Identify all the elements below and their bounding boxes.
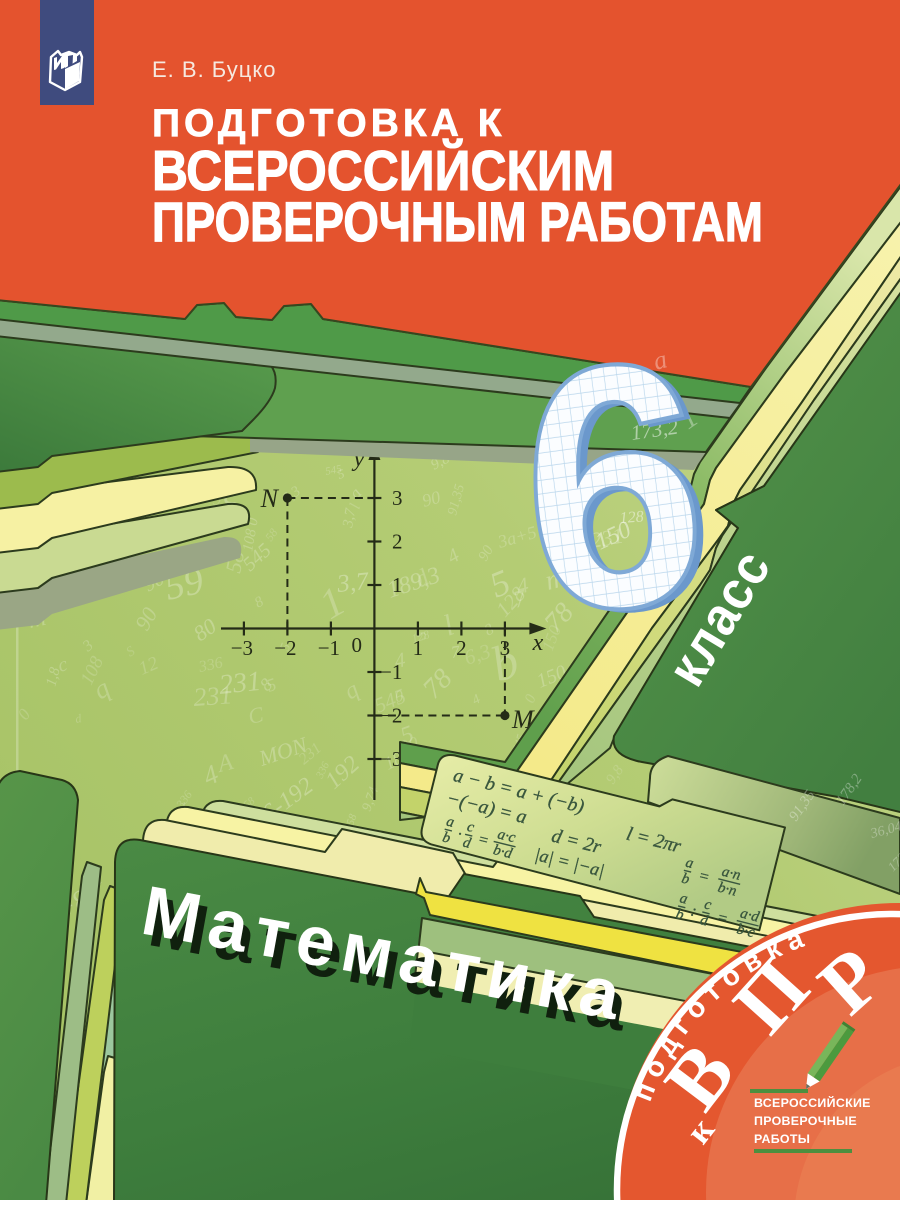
svg-text:231: 231 — [192, 680, 233, 712]
svg-text:0: 0 — [352, 633, 363, 657]
svg-text:РАБОТЫ: РАБОТЫ — [754, 1132, 810, 1146]
svg-text:ПРОВЕРОЧНЫЕ: ПРОВЕРОЧНЫЕ — [754, 1114, 857, 1128]
svg-text:1: 1 — [392, 573, 403, 597]
svg-text:6: 6 — [512, 288, 715, 685]
svg-text:Е. В. Буцко: Е. В. Буцко — [152, 57, 276, 82]
svg-text:ПРОВЕРОЧНЫМ РАБОТАМ: ПРОВЕРОЧНЫМ РАБОТАМ — [152, 191, 763, 253]
svg-text:ПОДГОТОВКА К: ПОДГОТОВКА К — [152, 102, 506, 145]
svg-text:−2: −2 — [274, 636, 296, 660]
svg-text:2: 2 — [392, 530, 403, 554]
svg-text:3,7: 3,7 — [335, 568, 371, 598]
svg-text:−1: −1 — [318, 636, 340, 660]
svg-text:−1: −1 — [380, 660, 402, 684]
svg-text:3: 3 — [392, 486, 403, 510]
svg-text:3: 3 — [500, 636, 511, 660]
svg-text:N: N — [260, 484, 280, 513]
svg-text:1: 1 — [413, 636, 424, 660]
svg-text:ВСЕРОССИЙСКИЕ: ВСЕРОССИЙСКИЕ — [754, 1095, 871, 1110]
svg-text:−2: −2 — [380, 704, 402, 728]
svg-text:−3: −3 — [231, 636, 253, 660]
svg-text:2: 2 — [456, 636, 467, 660]
svg-text:−3: −3 — [380, 747, 402, 771]
